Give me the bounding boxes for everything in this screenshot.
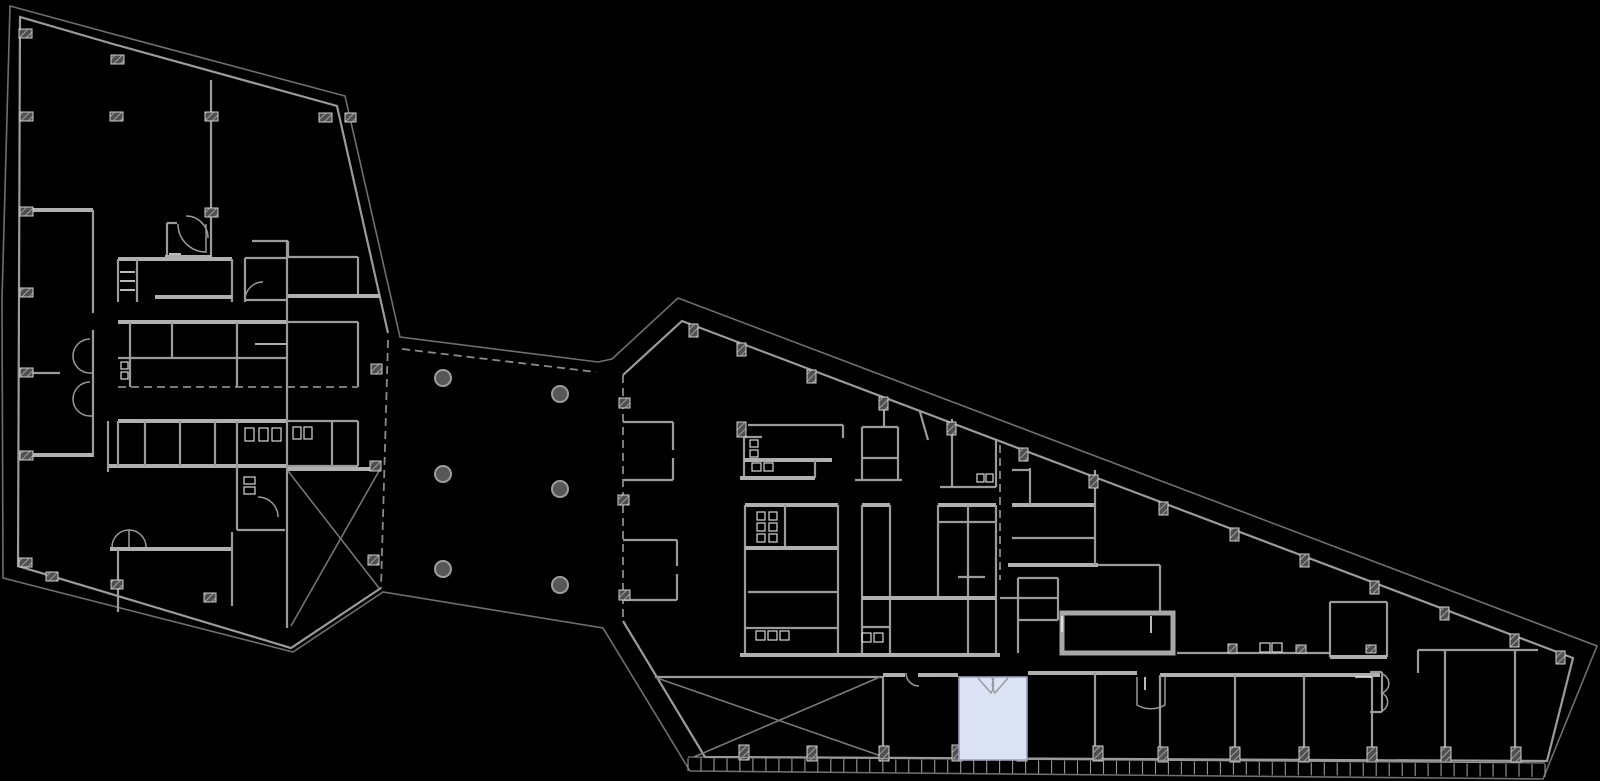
outer-outline — [2, 6, 1597, 779]
right-x-brace — [657, 677, 881, 757]
left-wing-doors — [73, 216, 278, 547]
floor-plan-page — [0, 0, 1600, 781]
connector-columns — [435, 370, 568, 593]
left-x-brace — [288, 469, 379, 626]
floor-plan-canvas — [0, 0, 1600, 781]
left-wing-walls — [20, 80, 380, 628]
floor-plan-layers — [2, 6, 1597, 779]
structure-columns — [19, 29, 1565, 762]
right-wing-walls — [623, 398, 1538, 757]
